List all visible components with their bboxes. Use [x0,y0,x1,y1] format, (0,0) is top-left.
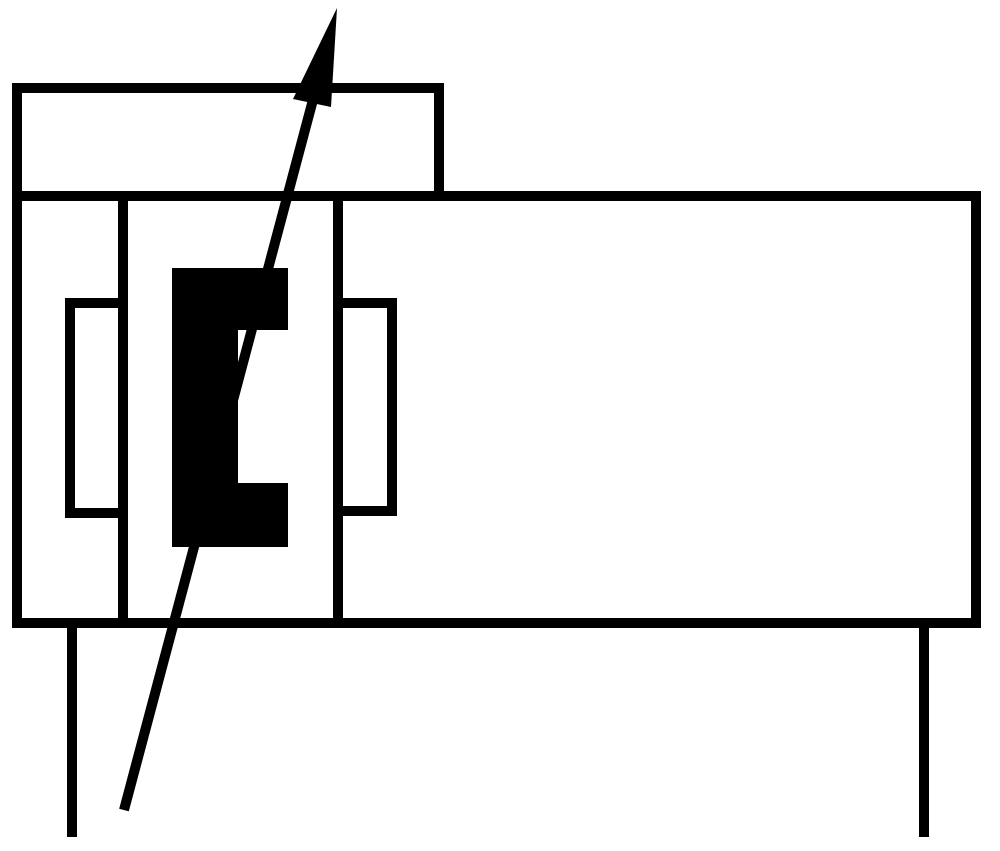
right-cushion-rect [338,303,392,511]
adjustability-arrow-shaft [124,96,314,810]
end-cap-rect [17,88,439,196]
adjustability-arrow-head [293,8,337,107]
schematic-stage [0,0,1000,851]
cylinder-body-rect [17,196,976,623]
schematic-svg [0,0,1000,851]
left-cushion-rect [70,303,123,513]
